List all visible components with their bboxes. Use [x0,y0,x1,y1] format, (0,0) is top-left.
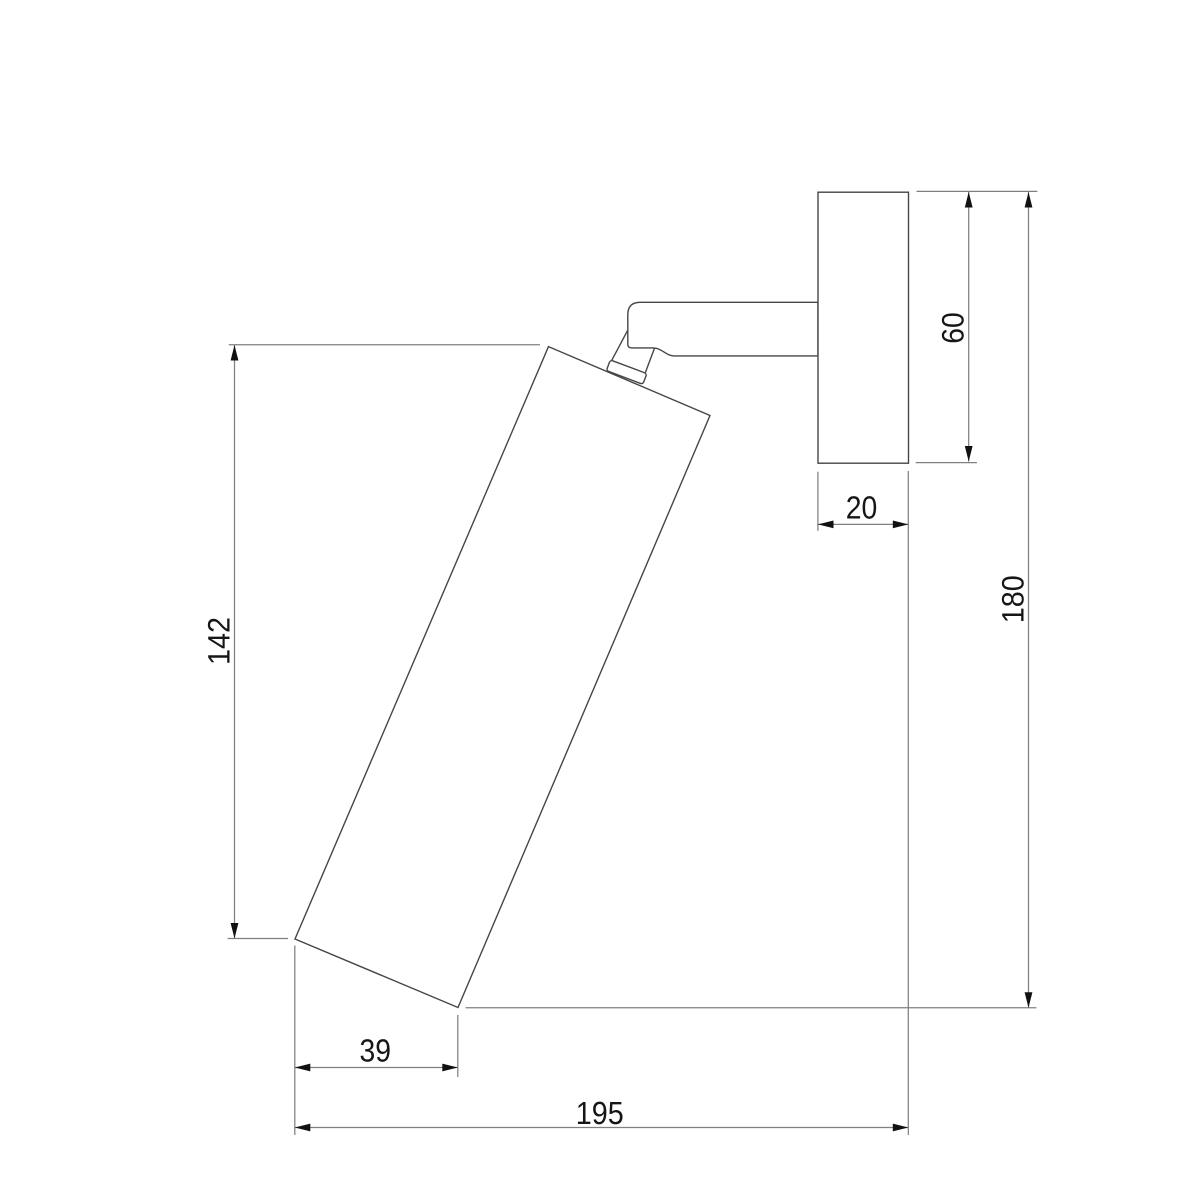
svg-text:142: 142 [202,617,237,665]
svg-text:39: 39 [360,1033,392,1069]
svg-text:60: 60 [936,312,971,344]
svg-text:195: 195 [576,1095,624,1131]
svg-text:180: 180 [995,575,1030,623]
svg-text:20: 20 [846,490,878,526]
